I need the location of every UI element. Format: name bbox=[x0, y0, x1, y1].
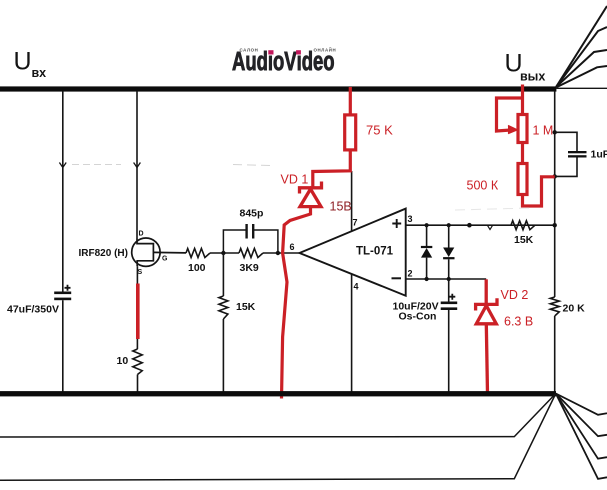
svg-text:ОНЛАЙН: ОНЛАЙН bbox=[314, 47, 337, 52]
svg-text:20 K: 20 K bbox=[563, 303, 586, 315]
svg-text:500 К: 500 К bbox=[467, 179, 499, 193]
svg-text:845p: 845p bbox=[240, 208, 264, 220]
svg-text:2: 2 bbox=[408, 269, 413, 279]
svg-text:6: 6 bbox=[290, 242, 295, 252]
svg-text:VD 1: VD 1 bbox=[281, 173, 309, 187]
svg-text:D: D bbox=[139, 231, 144, 238]
svg-text:75 K: 75 K bbox=[366, 123, 393, 138]
svg-text:15K: 15K bbox=[236, 301, 256, 313]
svg-text:1uF: 1uF bbox=[591, 149, 607, 161]
svg-text:3: 3 bbox=[408, 214, 413, 224]
svg-text:VD 2: VD 2 bbox=[501, 288, 529, 302]
svg-text:15В: 15В bbox=[330, 200, 352, 214]
svg-text:S: S bbox=[138, 269, 143, 276]
svg-text:100: 100 bbox=[188, 262, 206, 274]
svg-text:1 М: 1 М bbox=[533, 124, 554, 138]
svg-text:4: 4 bbox=[354, 282, 359, 292]
svg-text:G: G bbox=[162, 256, 168, 263]
svg-text:15K: 15K bbox=[514, 234, 534, 246]
svg-text:3K9: 3K9 bbox=[240, 262, 259, 274]
svg-text:10: 10 bbox=[117, 355, 129, 367]
svg-text:7: 7 bbox=[353, 218, 358, 228]
svg-text:47uF/350V: 47uF/350V bbox=[7, 304, 59, 316]
svg-text:вх: вх bbox=[32, 66, 47, 80]
svg-text:Os-Con: Os-Con bbox=[399, 311, 437, 323]
svg-text:IRF820 (H): IRF820 (H) bbox=[79, 248, 128, 259]
svg-text:U: U bbox=[14, 48, 32, 76]
svg-text:TL-071: TL-071 bbox=[356, 246, 394, 258]
svg-text:6.3 В: 6.3 В bbox=[504, 315, 533, 329]
svg-text:вых: вых bbox=[520, 70, 545, 84]
svg-text:САЛОН: САЛОН bbox=[240, 47, 259, 52]
